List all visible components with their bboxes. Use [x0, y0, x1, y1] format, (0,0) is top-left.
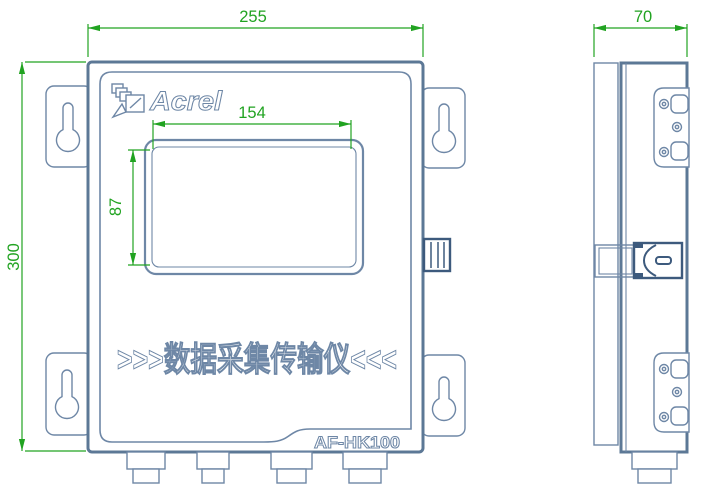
bracket-cutout	[671, 360, 688, 378]
mounting-tab-top-left	[46, 86, 92, 167]
mounting-tab-top-right	[421, 88, 465, 168]
gland-base	[271, 452, 312, 469]
screw-icon	[673, 388, 682, 397]
latch-clip	[634, 243, 682, 278]
screw-icon	[673, 123, 682, 132]
arrowhead-icon	[675, 25, 687, 31]
mounting-tab-bottom-left	[46, 353, 92, 435]
mounting-tab-bottom-right	[421, 355, 465, 436]
screw-icon	[660, 413, 669, 422]
latch-pin	[635, 243, 643, 248]
dimension-value-screen-width: 154	[238, 104, 266, 122]
cable-gland-2	[197, 452, 229, 483]
dimension-depth: 70	[594, 8, 687, 57]
cable-gland-1	[127, 452, 165, 483]
cable-gland-4	[343, 452, 387, 483]
dimension-value-width: 255	[239, 8, 267, 26]
model-label: AF-HK100	[314, 433, 400, 452]
side-door-flange	[594, 63, 618, 445]
arrowhead-icon	[19, 62, 25, 74]
arrowhead-icon	[594, 25, 606, 31]
technical-drawing: Acrel >>>数据采集传输仪<<< AF-HK100	[0, 0, 713, 503]
dimension-overall-width: 255	[88, 8, 423, 57]
gland-nut	[277, 469, 306, 483]
dimension-value-screen-height: 87	[107, 198, 125, 216]
latch-pin	[635, 273, 643, 278]
gland-nut	[349, 469, 381, 483]
side-mounting-bracket-bottom	[654, 353, 689, 432]
side-mounting-bracket-top	[654, 88, 689, 167]
screw-icon	[660, 365, 669, 374]
drawing-canvas: Acrel >>>数据采集传输仪<<< AF-HK100	[0, 0, 713, 503]
side-cable-gland	[632, 452, 677, 483]
gland-base	[343, 452, 387, 469]
cable-gland-3	[271, 452, 312, 483]
front-view: Acrel >>>数据采集传输仪<<< AF-HK100	[46, 62, 465, 483]
arrowhead-icon	[19, 439, 25, 451]
gland-base	[127, 452, 165, 469]
bracket-cutout	[671, 407, 688, 425]
arrowhead-icon	[411, 25, 423, 31]
product-banner-text: >>>数据采集传输仪<<<	[117, 341, 397, 379]
dimension-value-depth: 70	[634, 8, 652, 26]
screw-icon	[660, 100, 669, 109]
gland-base	[197, 452, 229, 469]
dimension-value-height: 300	[5, 243, 23, 271]
bracket-cutout	[671, 142, 688, 160]
cable-glands	[127, 452, 387, 483]
latch-body	[424, 239, 450, 271]
gland-nut	[133, 469, 159, 483]
latch-connector	[424, 239, 450, 271]
gland-nut	[202, 469, 224, 483]
gland-base	[632, 452, 677, 469]
arrowhead-icon	[88, 25, 100, 31]
screw-icon	[660, 148, 669, 157]
gland-nut	[638, 469, 671, 483]
brand-text: Acrel	[149, 86, 223, 116]
side-view	[594, 63, 689, 483]
bracket-cutout	[671, 95, 688, 113]
